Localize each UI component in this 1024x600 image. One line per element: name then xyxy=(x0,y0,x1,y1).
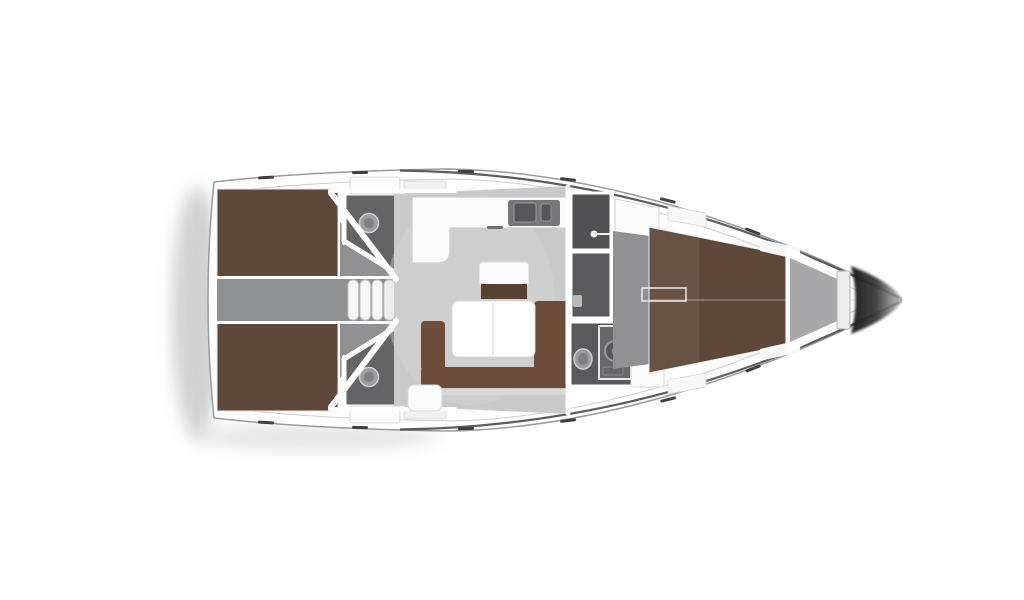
aft-cabin-port-bed xyxy=(217,189,338,277)
bow-stem xyxy=(851,266,903,334)
bow-bulkhead xyxy=(837,271,850,329)
deck-hatch-icon xyxy=(352,426,368,429)
salon-step-seat xyxy=(408,385,442,411)
galley-fiddle xyxy=(487,226,503,229)
yacht-floor-plan xyxy=(0,0,1024,600)
galley-sink-icon xyxy=(541,204,551,221)
step xyxy=(360,280,371,320)
aft-cabin-starboard-bed xyxy=(217,323,338,411)
toilet-bowl xyxy=(364,218,374,228)
toilet-bowl xyxy=(364,372,374,382)
step xyxy=(348,280,359,320)
wardrobe-floor xyxy=(571,252,611,318)
yacht-floor-plan-canvas xyxy=(0,0,1024,600)
salon-island-top xyxy=(479,262,529,286)
galley-sink-icon xyxy=(514,203,536,222)
step xyxy=(372,280,383,320)
salon-island-front xyxy=(481,284,527,299)
toilet-bowl xyxy=(578,353,588,365)
deck-hatch-icon xyxy=(458,170,474,173)
sofa-arm xyxy=(421,321,445,371)
sofa-seat xyxy=(421,367,568,388)
sofa-base-trim xyxy=(424,389,566,395)
deck-hatch-icon xyxy=(458,427,474,430)
shower-room-floor xyxy=(571,193,611,250)
deck-hatch-icon xyxy=(352,171,368,174)
wardrobe-fitting xyxy=(573,295,582,307)
